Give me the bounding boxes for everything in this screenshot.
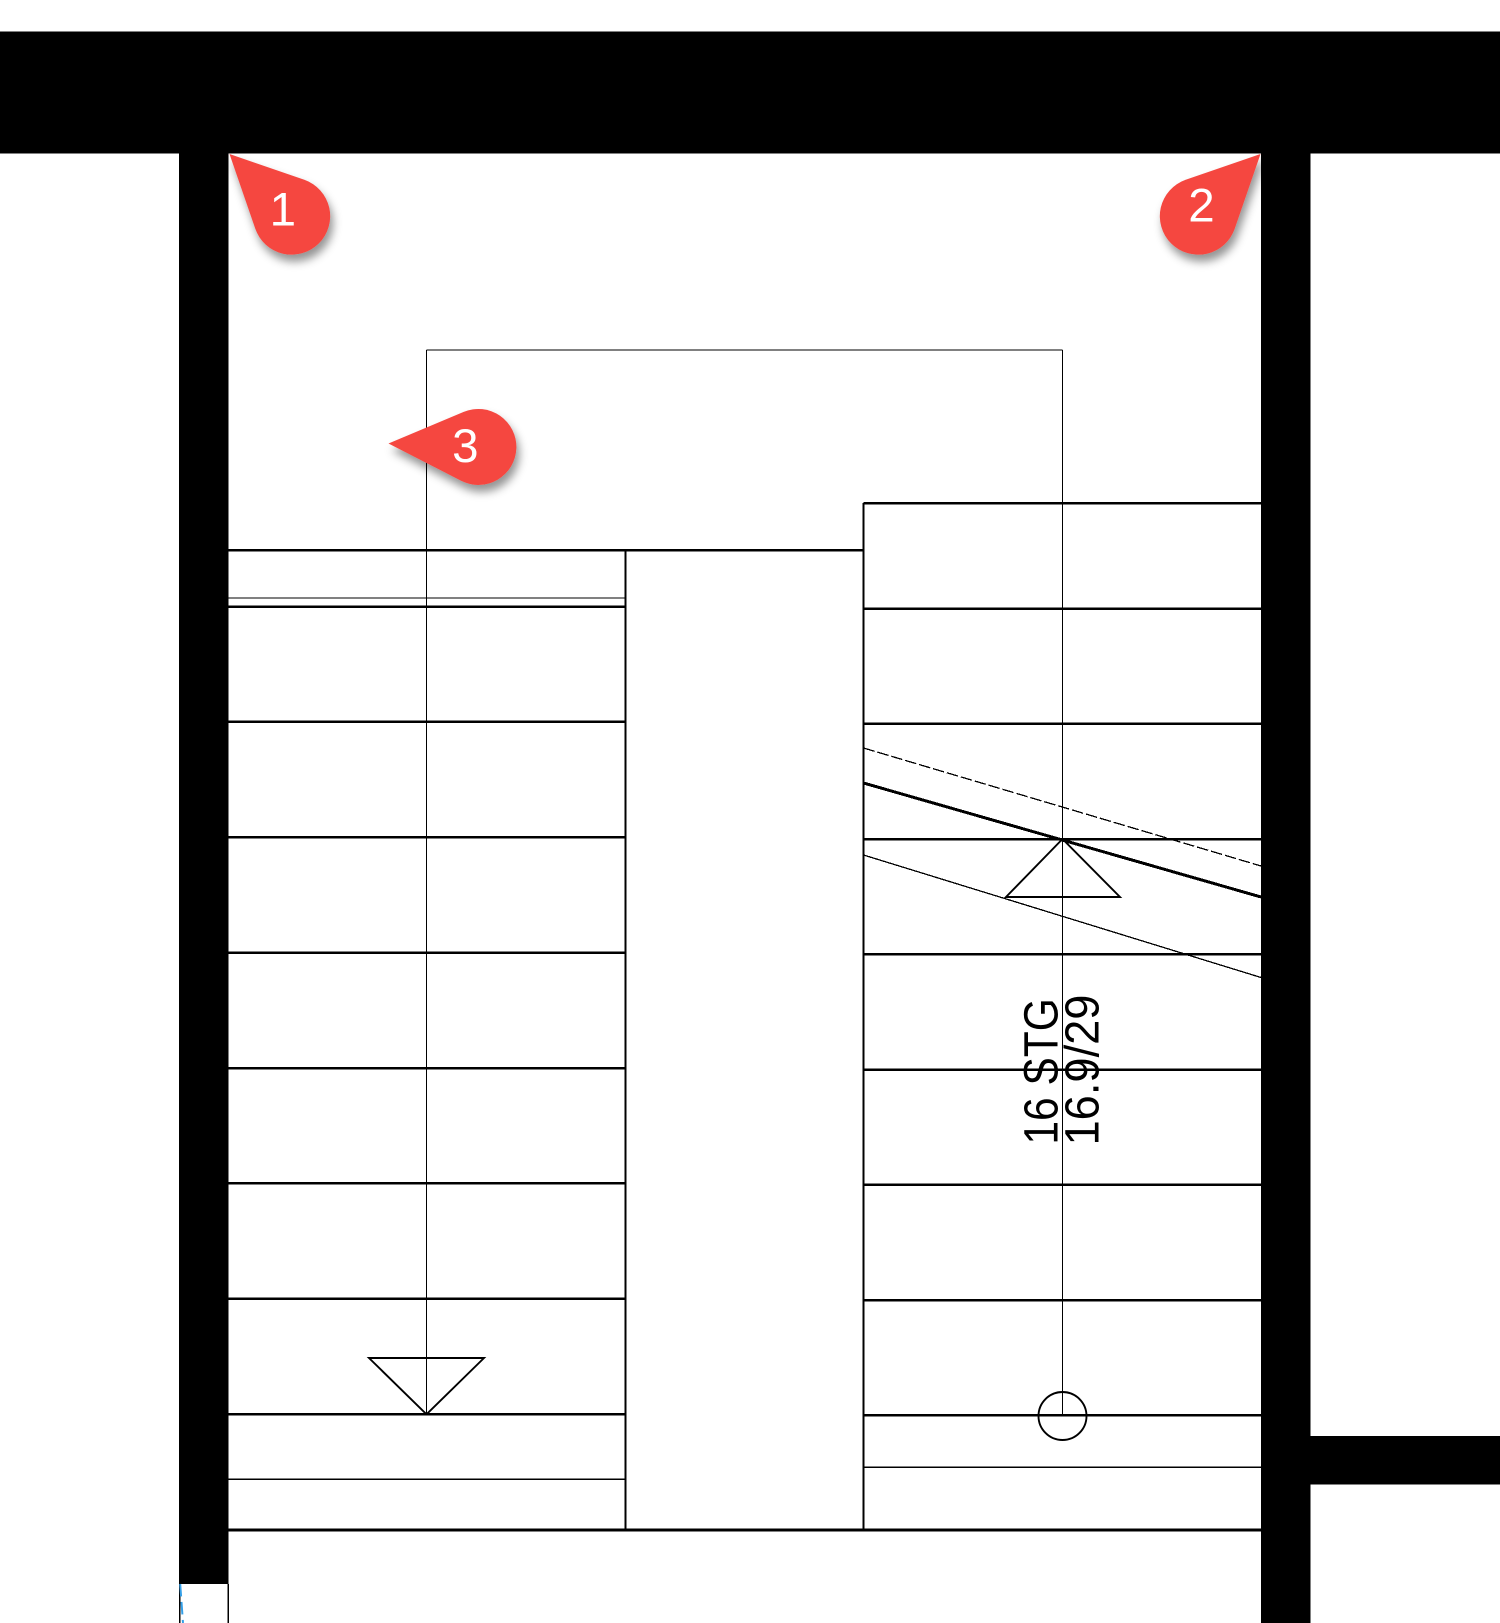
svg-text:3: 3	[452, 420, 478, 473]
svg-text:1: 1	[270, 184, 296, 237]
svg-text:2: 2	[1188, 180, 1214, 233]
svg-text:16.9/29: 16.9/29	[1055, 995, 1109, 1146]
